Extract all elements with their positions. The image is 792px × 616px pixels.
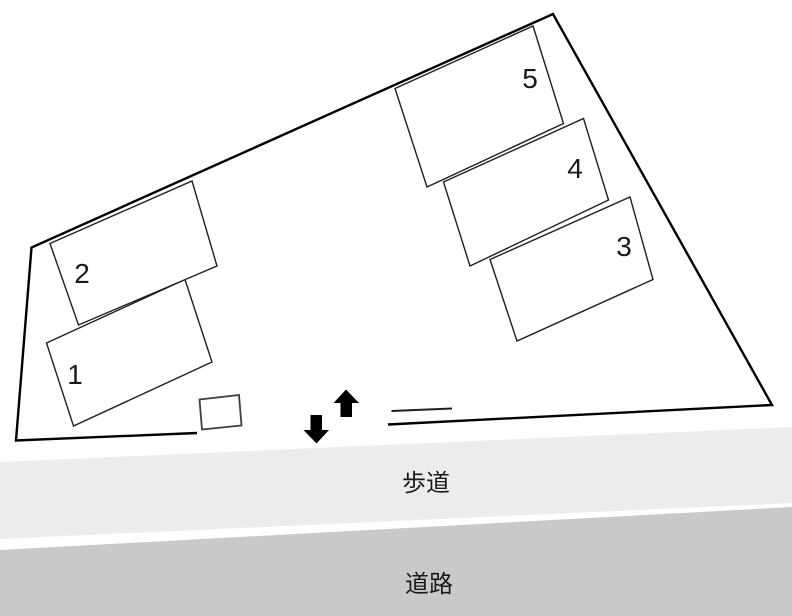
parking-space-4-label: 4 — [567, 153, 583, 184]
utility-box — [200, 395, 242, 430]
parking-space-3-label: 3 — [616, 231, 632, 262]
site-plan-svg: 1 2 3 4 5 歩道 道路 — [0, 0, 792, 616]
sidewalk-label: 歩道 — [402, 470, 450, 497]
parking-space-1-label: 1 — [67, 359, 83, 390]
up-arrow-icon — [334, 390, 360, 418]
site-plan: 1 2 3 4 5 歩道 道路 — [0, 0, 792, 616]
entrance-curb-line — [392, 409, 453, 412]
parking-space-2-label: 2 — [74, 258, 90, 289]
road-label: 道路 — [405, 571, 453, 598]
parking-space-5-label: 5 — [522, 63, 538, 94]
down-arrow-icon — [304, 415, 330, 444]
